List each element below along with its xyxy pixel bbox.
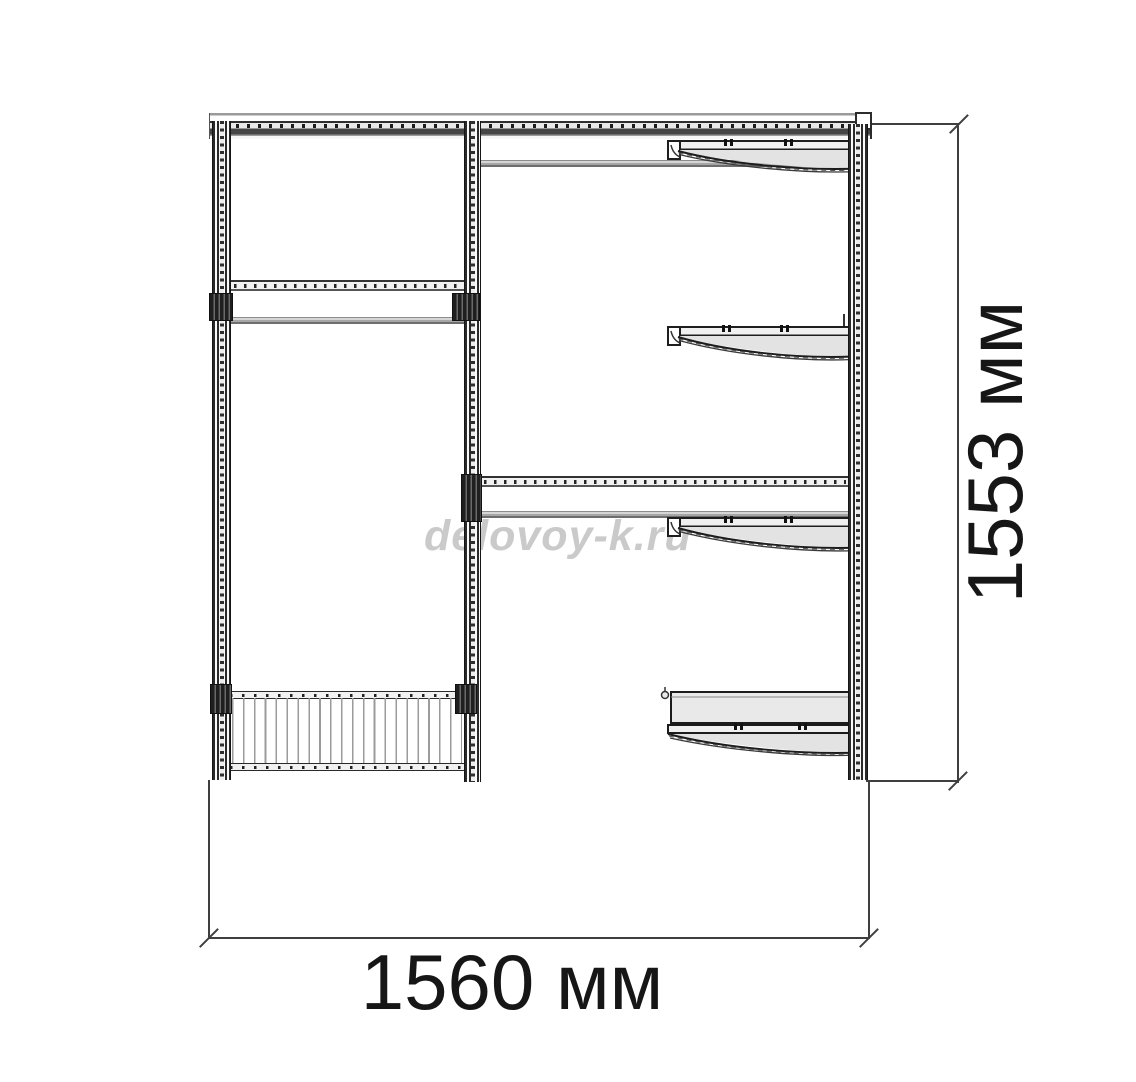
top-rail <box>209 113 872 139</box>
left-rod-bracket-inner <box>452 293 480 321</box>
basket-bracket-right <box>455 684 477 714</box>
left-post <box>212 121 231 780</box>
shelf-1-drawing <box>666 137 862 179</box>
left-hanging-rail <box>231 280 465 291</box>
center-post <box>464 121 481 782</box>
width-extension-line-right <box>868 782 870 939</box>
basket-bracket-left <box>210 684 232 714</box>
deep-shelf-4-drawing <box>658 686 864 762</box>
shelf-2-drawing <box>666 323 854 367</box>
width-dimension-label: 1560 мм <box>330 943 694 1021</box>
deep-shelf-4 <box>658 686 864 762</box>
width-extension-line-left <box>208 780 210 939</box>
shelf-1 <box>666 137 862 179</box>
height-extension-line-bottom <box>866 780 959 782</box>
shelf-3 <box>666 514 862 558</box>
basket-wires <box>232 698 462 763</box>
height-extension-line-top <box>868 123 959 125</box>
right-rail-bracket <box>461 474 482 522</box>
left-rod-bracket <box>209 293 233 321</box>
wire-basket <box>228 691 466 771</box>
technical-drawing-canvas: delovoy-k.ru <box>0 0 1136 1082</box>
right-post <box>848 124 868 780</box>
right-hanging-rail <box>481 476 849 487</box>
basket-bottom-rail <box>228 763 466 771</box>
left-clothes-rod <box>231 317 465 324</box>
shelf-2 <box>666 323 854 367</box>
shelf-3-drawing <box>666 514 862 558</box>
height-dimension-label: 1553 мм <box>956 287 1036 617</box>
